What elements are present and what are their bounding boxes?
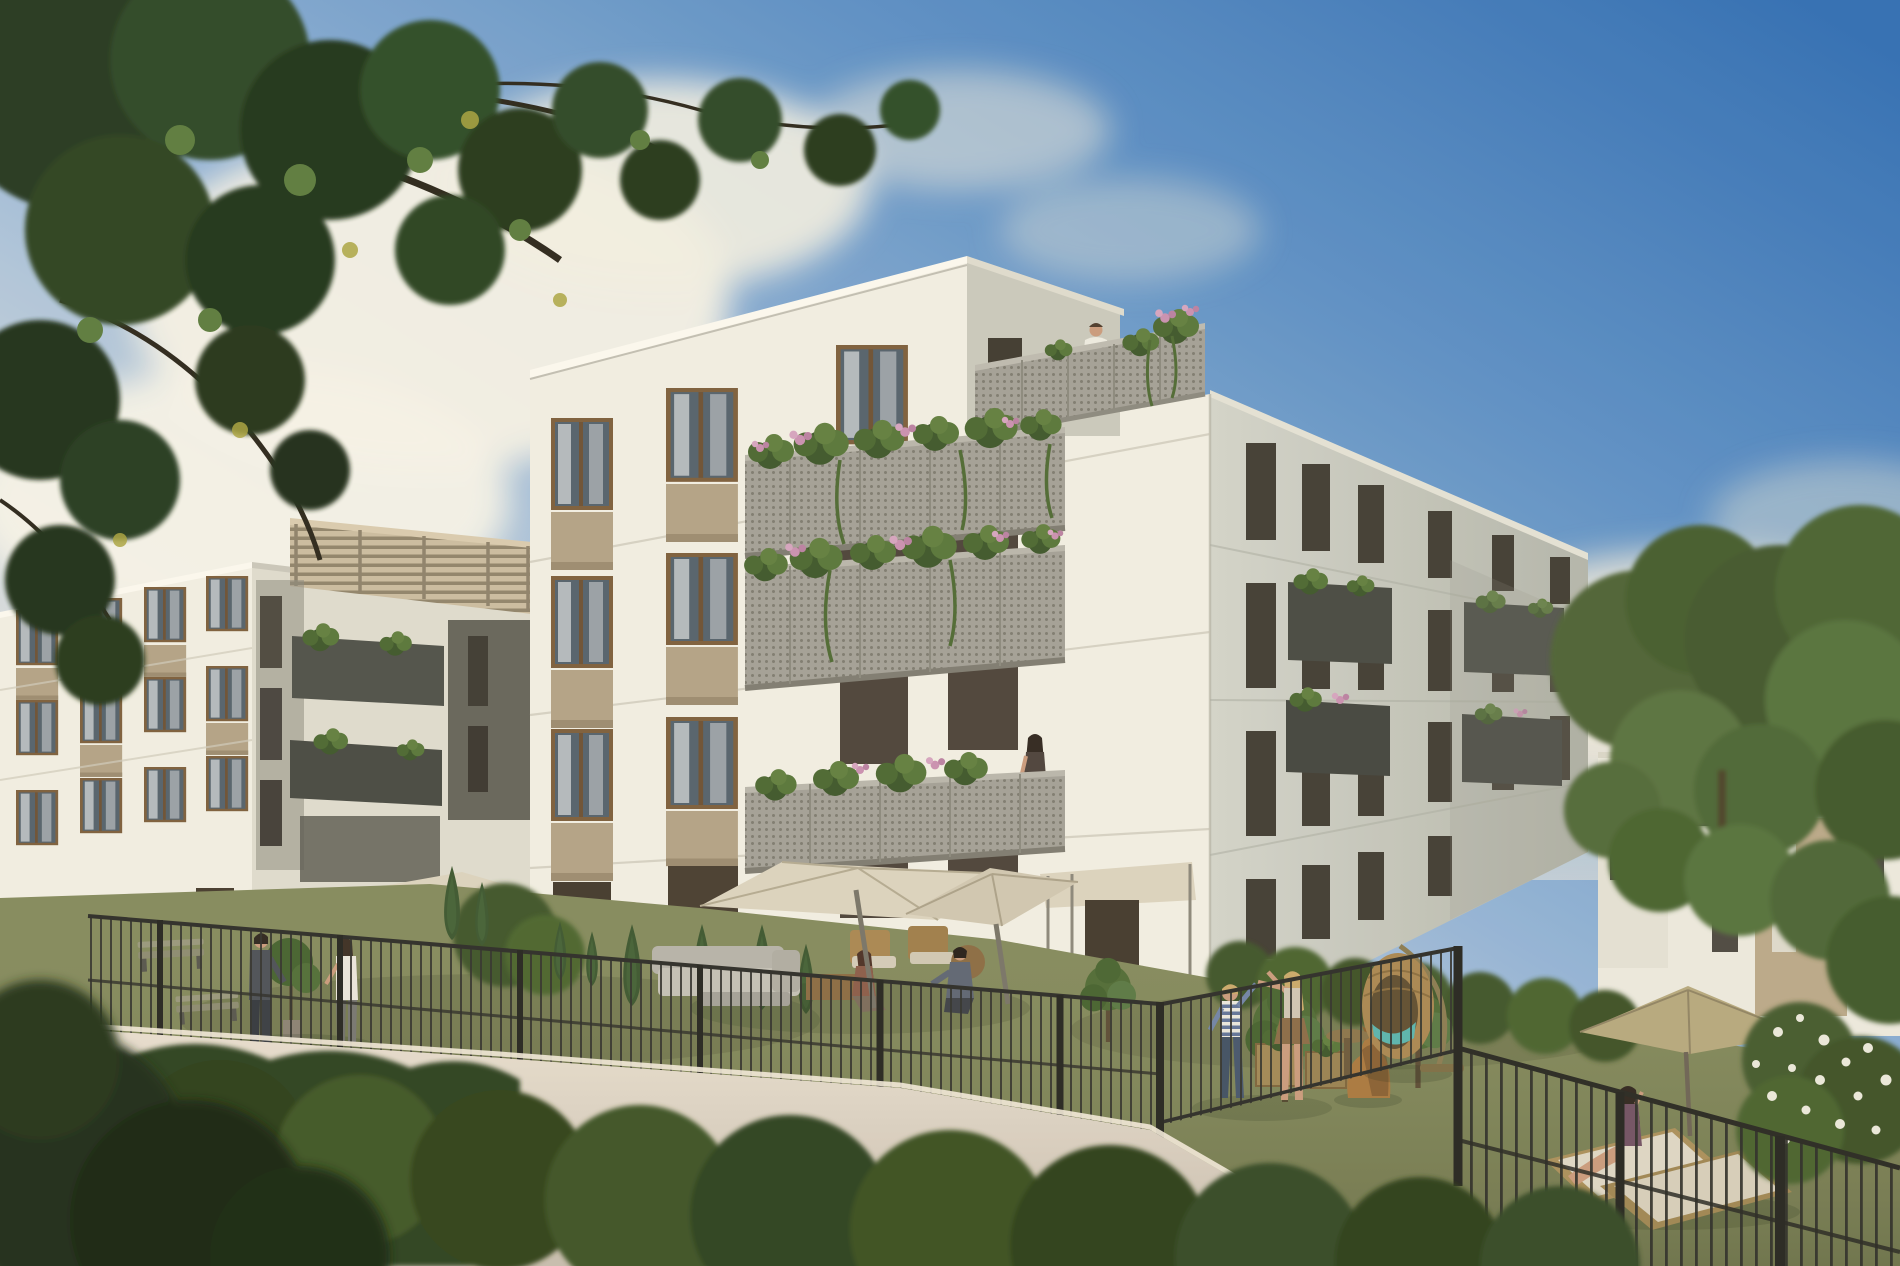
- rendered-scene: [0, 0, 1900, 1266]
- warm-light-overlay: [0, 0, 1900, 1266]
- architectural-visualization: [0, 0, 1900, 1266]
